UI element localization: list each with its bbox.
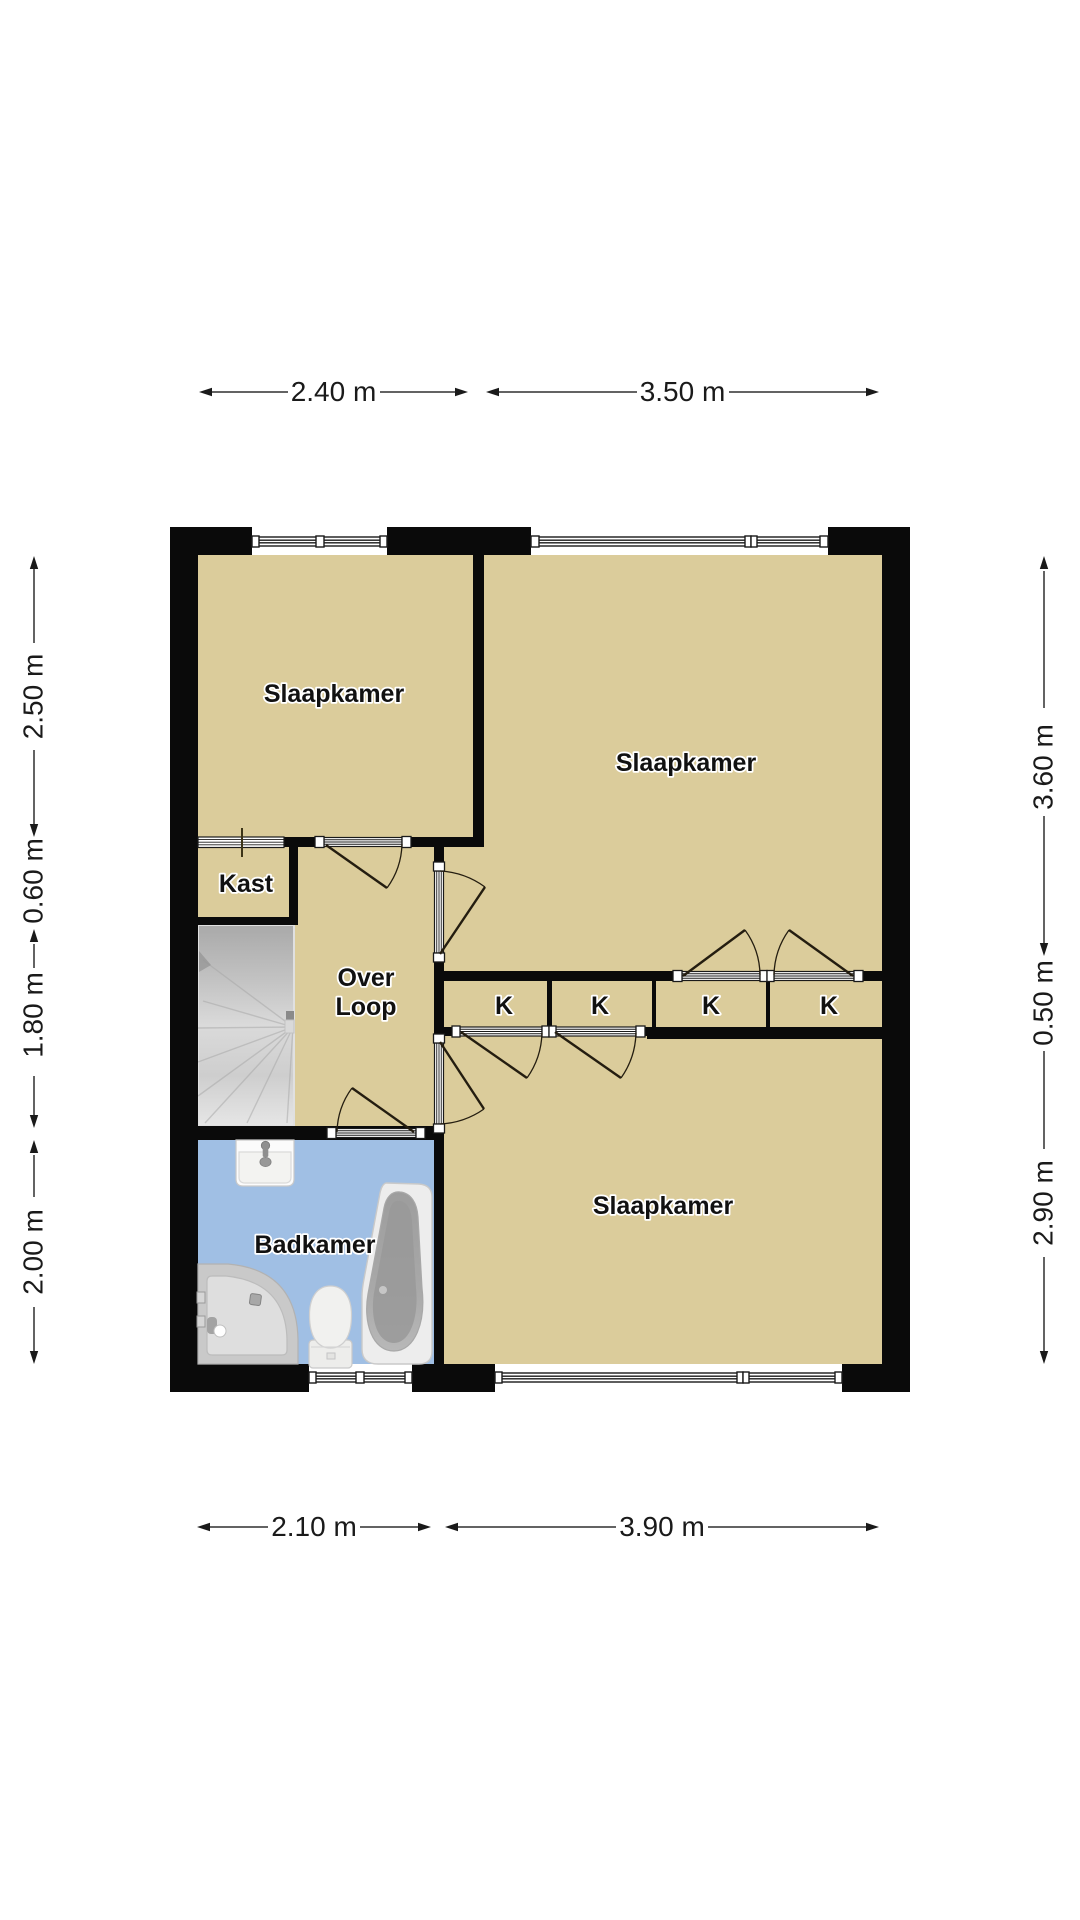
svg-text:Slaapkamer: Slaapkamer: [593, 1192, 734, 1220]
svg-text:2.10 m: 2.10 m: [271, 1511, 357, 1542]
svg-text:3.60 m: 3.60 m: [1028, 724, 1059, 810]
svg-text:K: K: [820, 992, 838, 1020]
svg-text:0.50 m: 0.50 m: [1028, 960, 1059, 1046]
svg-text:K: K: [702, 992, 720, 1020]
svg-text:3.50 m: 3.50 m: [640, 376, 726, 407]
svg-text:Slaapkamer: Slaapkamer: [264, 680, 405, 708]
svg-text:3.90 m: 3.90 m: [619, 1511, 705, 1542]
svg-text:2.00 m: 2.00 m: [18, 1209, 49, 1295]
svg-text:K: K: [495, 992, 513, 1020]
svg-text:Over: Over: [338, 964, 395, 992]
svg-text:Kast: Kast: [219, 870, 274, 898]
svg-text:Loop: Loop: [335, 993, 396, 1021]
svg-text:2.50 m: 2.50 m: [18, 654, 49, 740]
svg-text:2.90 m: 2.90 m: [1028, 1160, 1059, 1246]
svg-text:1.80 m: 1.80 m: [18, 972, 49, 1058]
svg-text:Badkamer: Badkamer: [255, 1231, 376, 1259]
svg-text:Slaapkamer: Slaapkamer: [616, 749, 757, 777]
svg-text:2.40 m: 2.40 m: [291, 376, 377, 407]
svg-text:0.60 m: 0.60 m: [18, 838, 49, 924]
svg-text:K: K: [591, 992, 609, 1020]
